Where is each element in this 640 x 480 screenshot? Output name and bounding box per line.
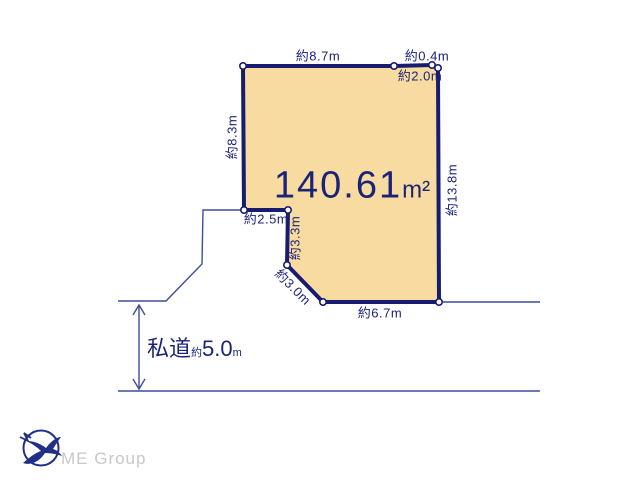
me-group-logo-text: ME Group [61, 449, 146, 469]
dimension-label-bottom: 約6.7m [358, 307, 402, 320]
road-value: 5.0 [202, 336, 233, 361]
road-unit: m [233, 347, 242, 359]
area-label: 140.61m² [274, 165, 430, 208]
area-value: 140.61 [274, 165, 402, 207]
dimension-label-top-right: 約2.0m [398, 70, 442, 83]
road-name: 私道 [147, 336, 191, 361]
neighbor-boundary-line [118, 210, 244, 301]
area-unit: m² [402, 177, 430, 204]
plot-diagram-canvas [0, 0, 640, 480]
dimension-label-right: 約13.8m [446, 164, 459, 216]
dimension-label-left: 約8.3m [226, 115, 239, 159]
road-width-arrow [133, 305, 145, 389]
road-approx: 約 [191, 347, 202, 359]
plot-diagram: 約8.7m 約0.4m 約2.0m 約8.3m 約13.8m 約2.5m 約3.… [0, 0, 640, 480]
me-group-logo-icon [20, 431, 62, 466]
dimension-label-top-right-corner: 約0.4m [405, 50, 449, 63]
dimension-label-inner-vertical: 約3.3m [289, 216, 302, 260]
road-width-label: 私道約5.0m [147, 331, 242, 363]
dimension-label-top: 約8.7m [296, 50, 340, 63]
dimension-label-step: 約2.5m [244, 213, 288, 226]
